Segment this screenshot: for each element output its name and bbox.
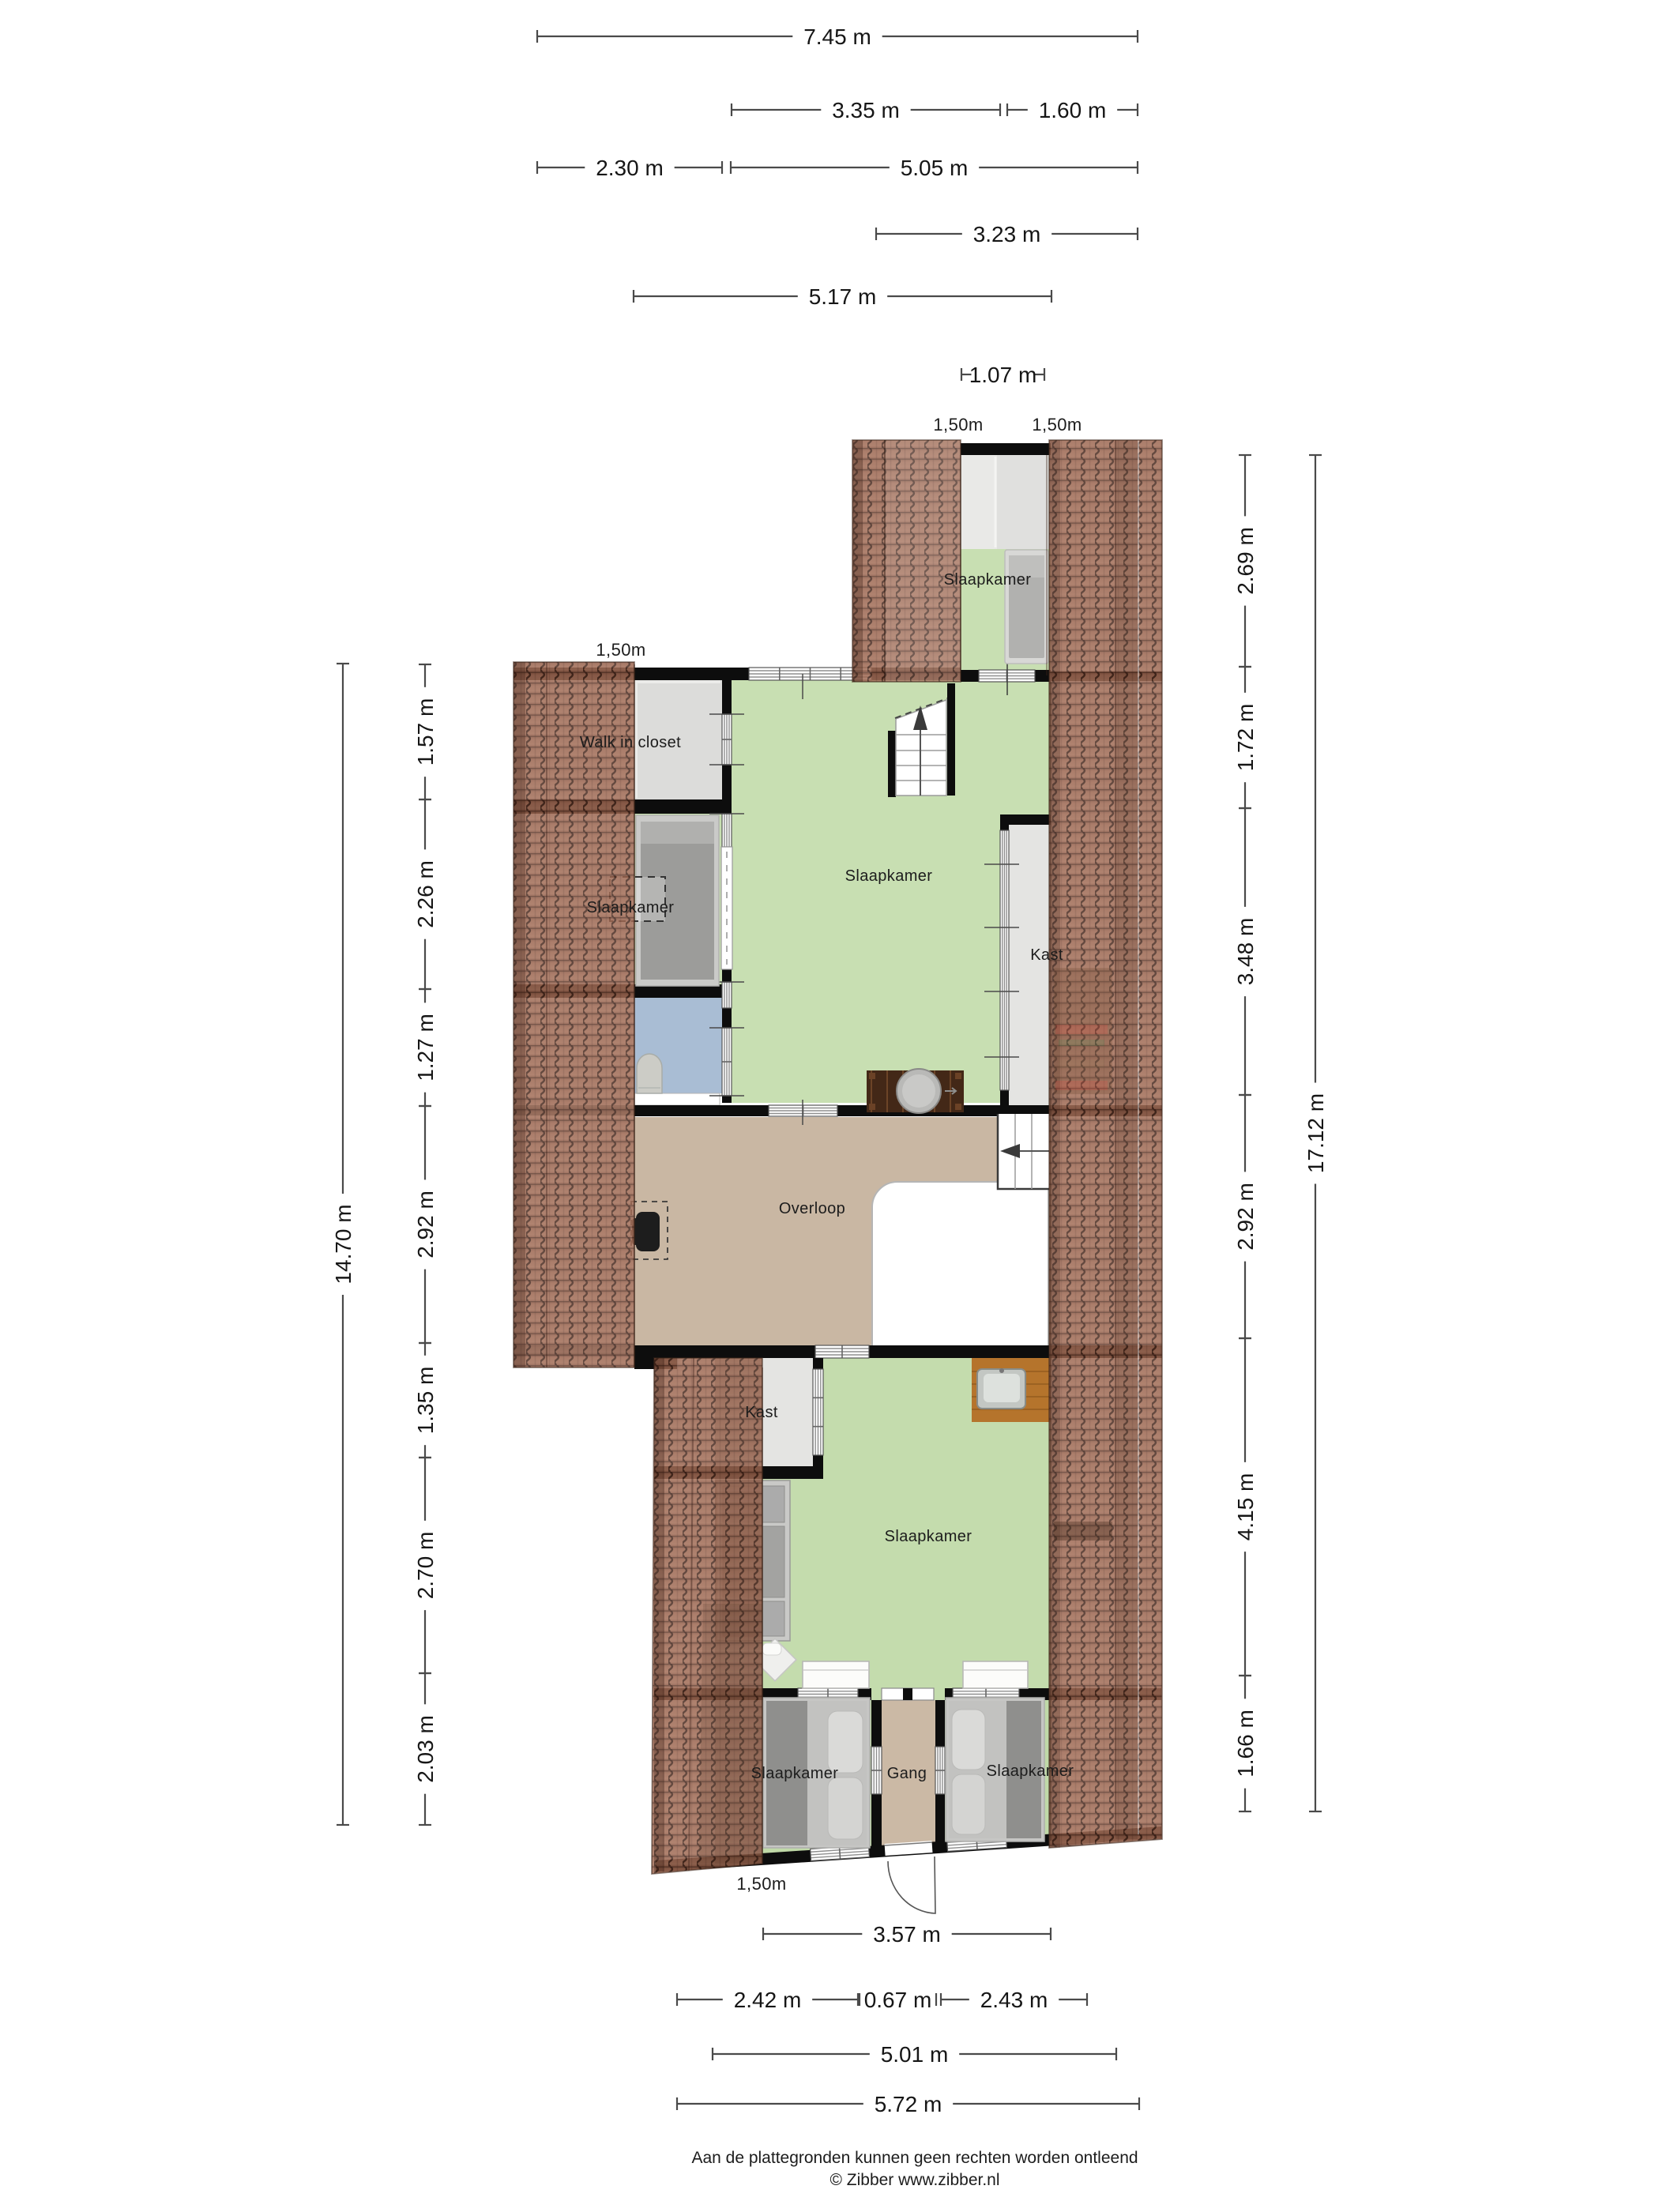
svg-text:1,50m: 1,50m [1032,415,1082,434]
svg-text:7.45 m: 7.45 m [803,24,871,49]
svg-text:3.35 m: 3.35 m [832,98,900,122]
svg-text:1.66 m: 1.66 m [1233,1710,1258,1777]
svg-text:Aan de plattegronden kunnen ge: Aan de plattegronden kunnen geen rechten… [691,2149,1138,2167]
svg-text:Slaapkamer: Slaapkamer [587,899,675,916]
svg-text:1,50m: 1,50m [736,1874,786,1894]
svg-text:1.35 m: 1.35 m [413,1367,438,1435]
svg-text:3.23 m: 3.23 m [973,222,1041,246]
svg-text:Gang: Gang [887,1765,927,1782]
svg-text:5.01 m: 5.01 m [881,2042,949,2067]
svg-text:1.27 m: 1.27 m [413,1014,438,1082]
svg-text:2.70 m: 2.70 m [413,1532,438,1600]
svg-text:5.72 m: 5.72 m [875,2092,942,2116]
svg-text:5.17 m: 5.17 m [809,284,877,309]
svg-text:Overloop: Overloop [779,1200,845,1217]
svg-text:Slaapkamer: Slaapkamer [885,1528,972,1545]
svg-text:1,50m: 1,50m [596,640,645,660]
svg-text:Slaapkamer: Slaapkamer [944,571,1032,589]
svg-text:2.42 m: 2.42 m [734,1988,802,2012]
svg-text:2.30 m: 2.30 m [596,156,664,180]
svg-text:4.15 m: 4.15 m [1233,1473,1258,1541]
svg-text:2.43 m: 2.43 m [980,1988,1048,2012]
svg-text:Walk in closet: Walk in closet [580,734,681,751]
svg-text:14.70 m: 14.70 m [331,1204,355,1284]
svg-text:1.60 m: 1.60 m [1039,98,1107,122]
svg-text:Slaapkamer: Slaapkamer [845,867,933,885]
svg-text:Slaapkamer: Slaapkamer [751,1765,839,1782]
svg-text:© Zibber www.zibber.nl: © Zibber www.zibber.nl [829,2171,999,2189]
svg-text:Kast: Kast [745,1404,778,1421]
svg-text:1.57 m: 1.57 m [413,698,438,766]
svg-text:0.67 m: 0.67 m [864,1988,932,2012]
svg-text:2.03 m: 2.03 m [413,1715,438,1783]
svg-text:1.07 m: 1.07 m [969,363,1037,387]
svg-text:5.05 m: 5.05 m [901,156,969,180]
svg-text:1.72 m: 1.72 m [1233,704,1258,772]
svg-text:Slaapkamer: Slaapkamer [987,1762,1074,1780]
svg-text:1,50m: 1,50m [933,415,983,434]
svg-text:2.69 m: 2.69 m [1233,527,1258,595]
svg-text:Kast: Kast [1030,946,1063,964]
svg-text:2.26 m: 2.26 m [413,860,438,928]
svg-text:2.92 m: 2.92 m [413,1191,438,1258]
svg-text:17.12 m: 17.12 m [1303,1093,1328,1173]
svg-text:3.57 m: 3.57 m [873,1922,941,1947]
svg-text:3.48 m: 3.48 m [1233,918,1258,986]
svg-text:2.92 m: 2.92 m [1233,1183,1258,1251]
